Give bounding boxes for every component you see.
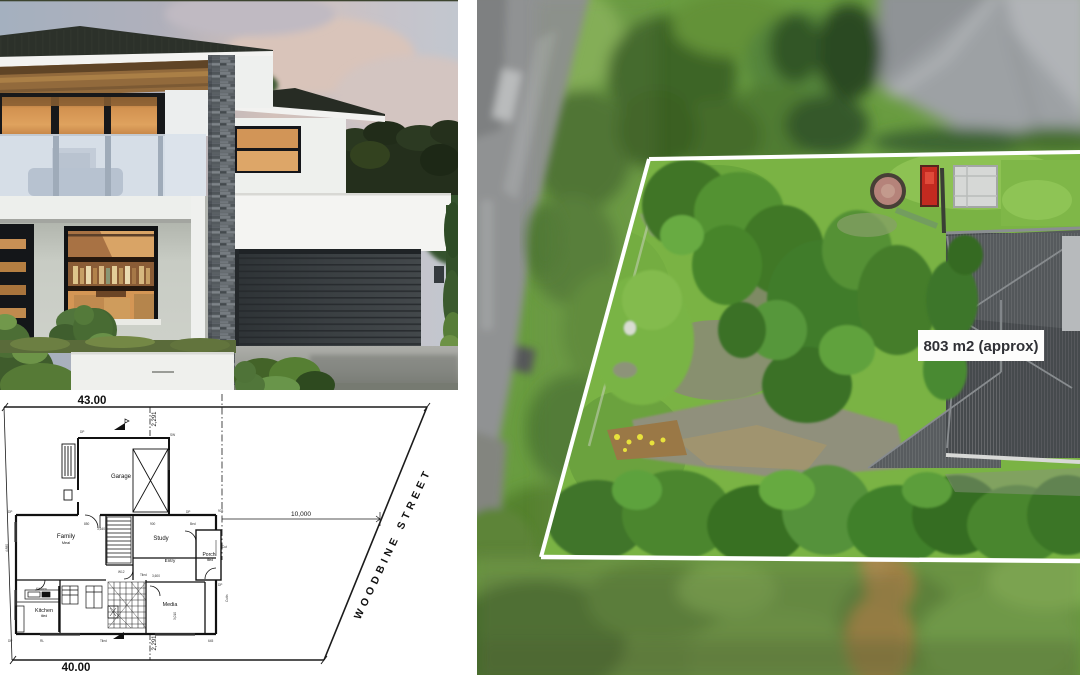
svg-text:645: 645	[208, 639, 214, 643]
svg-text:Cut: Cut	[222, 545, 227, 549]
svg-text:SW: SW	[170, 433, 175, 437]
svg-text:DP: DP	[186, 510, 190, 514]
svg-text:Bed: Bed	[190, 522, 196, 526]
svg-text:Family: Family	[57, 533, 76, 540]
svg-text:3,640: 3,640	[97, 527, 105, 531]
svg-text:DP: DP	[8, 510, 12, 514]
svg-text:Cutln: Cutln	[225, 594, 229, 602]
svg-text:43.00: 43.00	[78, 395, 107, 407]
svg-text:3,010: 3,010	[173, 612, 177, 620]
svg-text:DP: DP	[80, 430, 84, 434]
svg-text:Tiled: Tiled	[100, 639, 107, 643]
svg-text:900: 900	[150, 522, 156, 526]
svg-text:RL: RL	[40, 639, 44, 643]
svg-text:2,291: 2,291	[152, 635, 158, 651]
svg-text:DP: DP	[218, 583, 222, 587]
svg-text:803 m2 (approx): 803 m2 (approx)	[923, 338, 1038, 355]
svg-text:tiled: tiled	[41, 614, 47, 618]
svg-text:3,600: 3,600	[152, 574, 160, 578]
svg-text:Study: Study	[153, 536, 168, 542]
svg-text:4,880: 4,880	[5, 544, 9, 552]
svg-text:Entry: Entry	[165, 558, 176, 563]
svg-text:W12: W12	[118, 570, 125, 574]
svg-text:Media: Media	[163, 602, 178, 608]
svg-text:903: 903	[218, 509, 224, 513]
svg-text:40.00: 40.00	[62, 662, 91, 674]
svg-text:10,000: 10,000	[291, 511, 311, 518]
svg-text:tiled: tiled	[207, 558, 213, 562]
svg-text:850: 850	[84, 522, 90, 526]
svg-text:2,291: 2,291	[152, 411, 158, 427]
svg-text:DP: DP	[8, 639, 12, 643]
svg-text:Garage: Garage	[111, 474, 132, 480]
svg-text:Meal: Meal	[62, 541, 70, 545]
svg-text:Tiled: Tiled	[140, 573, 147, 577]
svg-text:Kitchen: Kitchen	[36, 587, 47, 591]
